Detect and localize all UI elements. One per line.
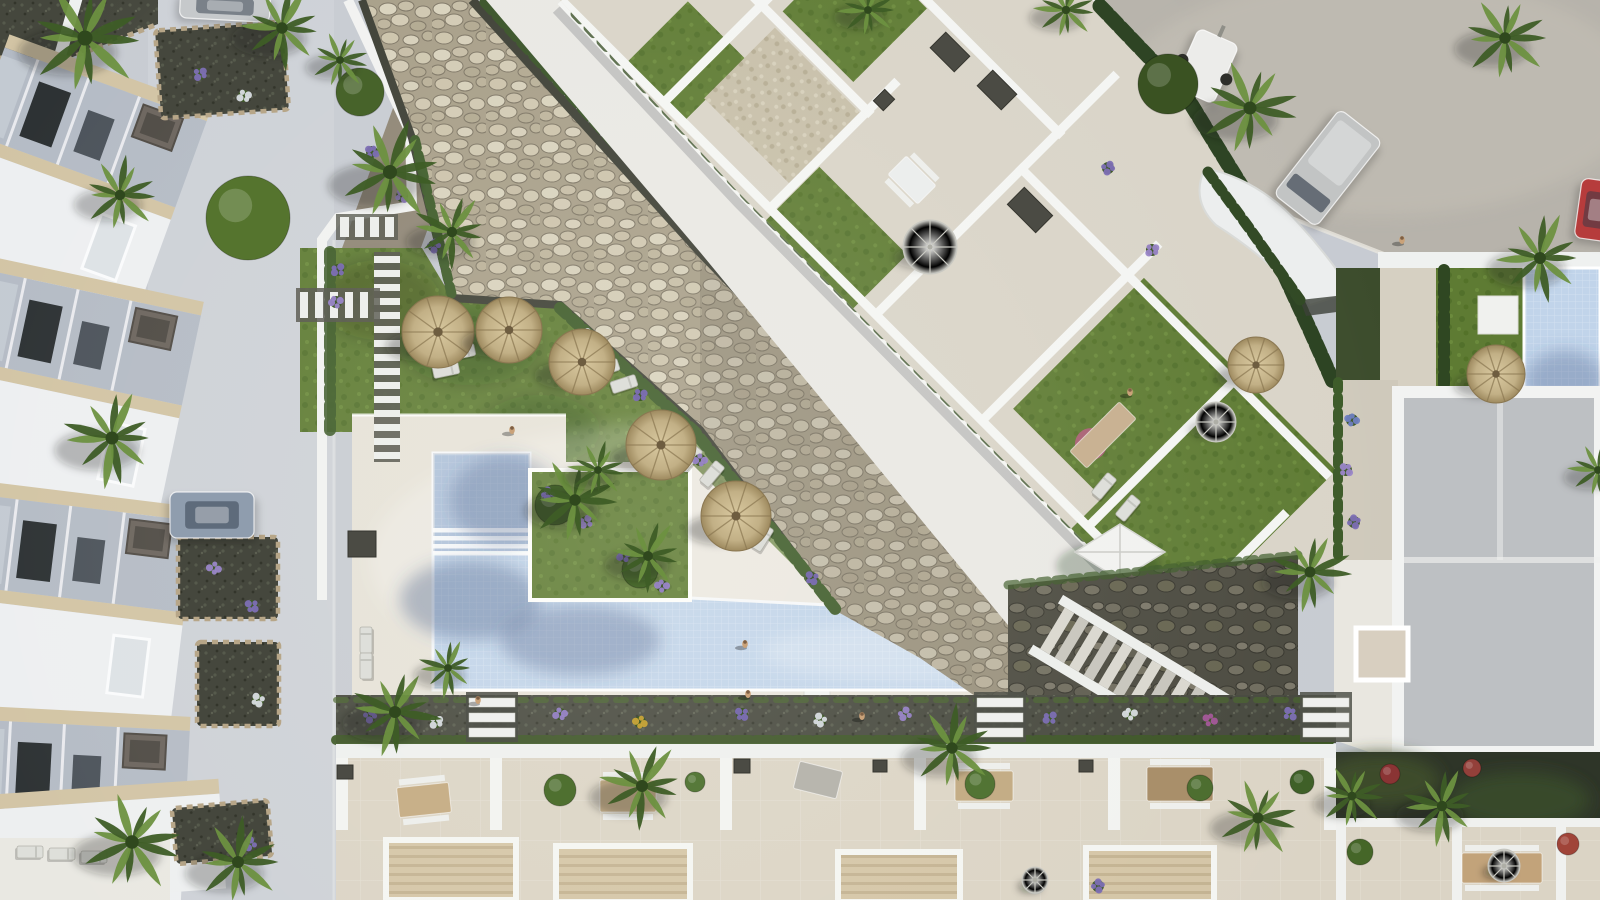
bush — [1557, 833, 1579, 855]
render-canvas — [0, 0, 1600, 900]
bush — [1187, 775, 1213, 801]
sun-lounger — [360, 627, 374, 655]
grill-box — [337, 765, 353, 779]
step-path — [466, 692, 518, 742]
grill-box — [1079, 760, 1093, 772]
step-path — [1300, 692, 1352, 742]
sun-lounger — [15, 846, 43, 860]
bush — [206, 176, 290, 260]
bush — [1290, 770, 1314, 794]
bush — [965, 769, 995, 799]
sun-lounger — [47, 848, 75, 862]
grill-box — [348, 531, 376, 557]
bush — [1380, 764, 1400, 784]
bush — [685, 772, 705, 792]
planting-bed — [197, 642, 279, 726]
grill-box — [873, 760, 887, 772]
scene-aerial-render — [0, 0, 1600, 900]
bush — [544, 774, 576, 806]
bush — [1347, 839, 1373, 865]
bush — [1463, 759, 1481, 777]
planting-bed — [178, 537, 278, 619]
sun-lounger — [360, 653, 374, 681]
bush — [1138, 54, 1198, 114]
car — [166, 492, 258, 543]
grill-box — [734, 759, 750, 773]
